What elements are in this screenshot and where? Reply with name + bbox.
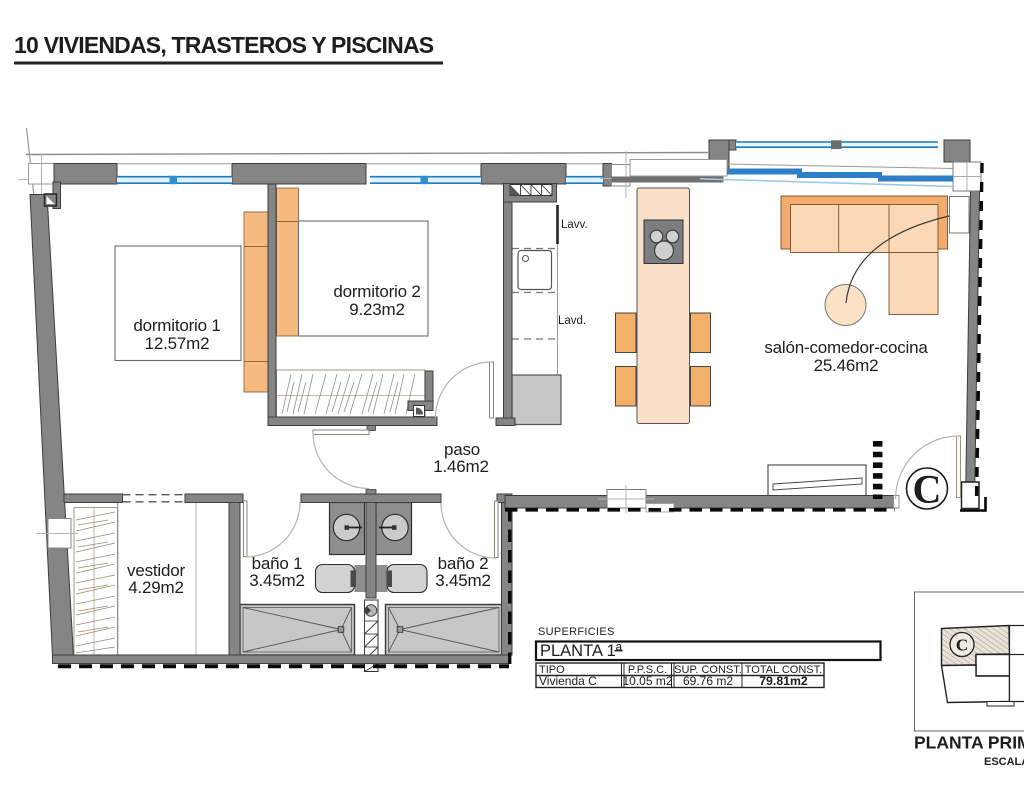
svg-text:C: C — [913, 467, 942, 512]
svg-text:ESCALA 1/100: ESCALA 1/100 — [984, 756, 1024, 768]
svg-text:salón-comedor-cocina: salón-comedor-cocina — [764, 338, 928, 357]
svg-text:3.45m2: 3.45m2 — [249, 571, 305, 590]
svg-text:3.45m2: 3.45m2 — [435, 571, 491, 590]
svg-text:C: C — [956, 636, 968, 655]
svg-text:12.57m2: 12.57m2 — [145, 334, 210, 353]
svg-text:dormitorio 2: dormitorio 2 — [333, 282, 420, 301]
svg-text:25.46m2: 25.46m2 — [814, 356, 879, 375]
svg-text:Lavd.: Lavd. — [558, 315, 586, 327]
svg-text:10.05 m2: 10.05 m2 — [622, 674, 672, 688]
svg-text:69.76 m2: 69.76 m2 — [683, 674, 733, 688]
svg-text:Vivienda C: Vivienda C — [539, 674, 597, 688]
svg-text:dormitorio 1: dormitorio 1 — [133, 316, 220, 335]
svg-text:79.81m2: 79.81m2 — [759, 674, 808, 688]
svg-text:4.29m2: 4.29m2 — [128, 578, 184, 597]
svg-text:9.23m2: 9.23m2 — [349, 300, 405, 319]
svg-text:10 VIVIENDAS, TRASTEROS Y PISC: 10 VIVIENDAS, TRASTEROS Y PISCINAS — [14, 32, 434, 58]
svg-text:1.46m2: 1.46m2 — [433, 457, 489, 476]
svg-text:Lavv.: Lavv. — [561, 219, 588, 231]
svg-text:PLANTA PRIMERA: PLANTA PRIMERA — [914, 733, 1024, 753]
svg-text:SUPERFICIES: SUPERFICIES — [538, 626, 615, 638]
svg-text:PLANTA 1ª: PLANTA 1ª — [540, 642, 623, 660]
